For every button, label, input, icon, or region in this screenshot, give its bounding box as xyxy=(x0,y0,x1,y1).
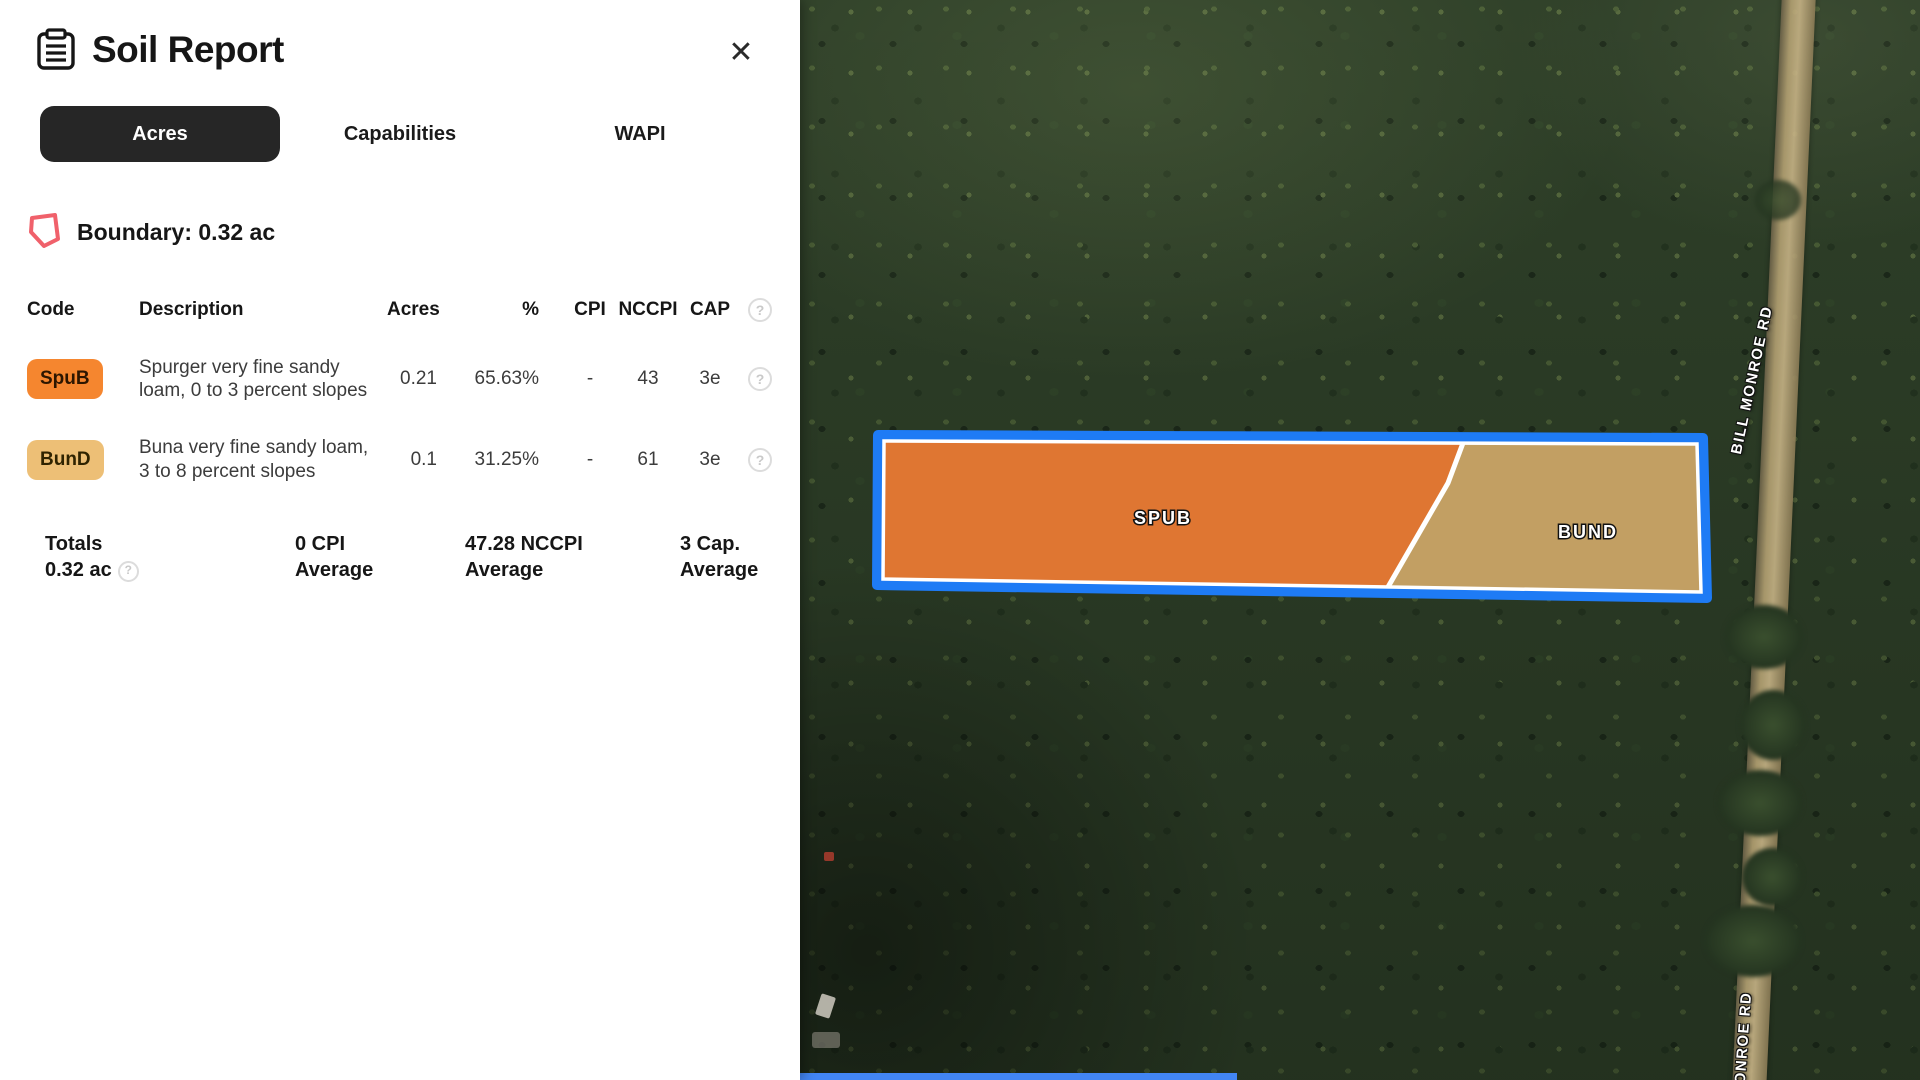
totals-cap-label: Average xyxy=(680,557,760,583)
soil-acres: 0.21 xyxy=(387,368,457,390)
soil-percent: 31.25% xyxy=(457,449,565,471)
spub-map-label: SPUB xyxy=(1134,508,1192,528)
satellite-map[interactable]: SPUB BUND BILL MONROE RD MONROE RD xyxy=(800,0,1920,1080)
bund-map-label: BUND xyxy=(1558,522,1618,542)
report-icon xyxy=(36,28,76,72)
totals-cpi-label: Average xyxy=(295,557,465,583)
soil-description: Spurger very fine sandy loam, 0 to 3 per… xyxy=(139,356,387,402)
tab-capabilities[interactable]: Capabilities xyxy=(280,106,520,162)
soil-percent: 65.63% xyxy=(457,368,565,390)
totals-nccpi-value: 47.28 NCCPI xyxy=(465,531,680,557)
soil-report-panel: Soil Report ✕ Acres Capabilities WAPI Bo… xyxy=(0,0,800,1080)
header-nccpi: NCCPI xyxy=(615,299,681,321)
boundary-label: Boundary: 0.32 ac xyxy=(77,219,275,246)
header-cpi: CPI xyxy=(565,299,615,321)
horizontal-scrollbar[interactable] xyxy=(800,1073,1237,1080)
totals-cpi: 0 CPI Average xyxy=(295,531,465,584)
table-row: SpuB Spurger very fine sandy loam, 0 to … xyxy=(0,356,800,402)
boundary-summary: Boundary: 0.32 ac xyxy=(27,212,800,252)
soil-cpi: - xyxy=(565,368,615,390)
soil-cpi: - xyxy=(565,449,615,471)
soil-acres: 0.1 xyxy=(387,449,457,471)
table-row: BunD Buna very fine sandy loam, 3 to 8 p… xyxy=(0,436,800,482)
help-icon[interactable]: ? xyxy=(748,448,772,472)
panel-header: Soil Report ✕ xyxy=(0,0,800,72)
totals-cap-value: 3 Cap. xyxy=(680,531,760,557)
soil-nccpi: 43 xyxy=(615,368,681,390)
screen: SPUB BUND BILL MONROE RD MONROE RD Soil … xyxy=(0,0,1920,1080)
page-title: Soil Report xyxy=(92,29,284,71)
help-icon[interactable]: ? xyxy=(748,298,772,322)
totals-cpi-value: 0 CPI xyxy=(295,531,465,557)
soil-cap: 3e xyxy=(681,449,739,471)
soil-code-badge-spub: SpuB xyxy=(27,359,103,399)
boundary-polygon-icon xyxy=(27,212,65,252)
tab-acres[interactable]: Acres xyxy=(40,106,280,162)
tab-bar: Acres Capabilities WAPI xyxy=(40,106,760,162)
totals-nccpi-label: Average xyxy=(465,557,680,583)
totals-row: Totals 0.32 ac? 0 CPI Average 47.28 NCCP… xyxy=(0,531,800,584)
soil-nccpi: 61 xyxy=(615,449,681,471)
soil-description: Buna very fine sandy loam, 3 to 8 percen… xyxy=(139,436,387,482)
header-acres: Acres xyxy=(387,299,457,321)
totals-acres: Totals 0.32 ac? xyxy=(45,531,295,584)
totals-title: Totals xyxy=(45,531,295,557)
parcel-overlay[interactable]: SPUB BUND xyxy=(800,0,1920,1080)
soil-texture xyxy=(883,441,1701,592)
header-percent: % xyxy=(457,299,565,321)
header-code: Code xyxy=(27,299,139,321)
help-icon[interactable]: ? xyxy=(118,561,139,582)
header-description: Description xyxy=(139,299,387,321)
totals-cap: 3 Cap. Average xyxy=(680,531,760,584)
totals-nccpi: 47.28 NCCPI Average xyxy=(465,531,680,584)
totals-acres-value: 0.32 ac xyxy=(45,559,112,581)
tab-wapi[interactable]: WAPI xyxy=(520,106,760,162)
close-button[interactable]: ✕ xyxy=(724,36,758,70)
table-header: Code Description Acres % CPI NCCPI CAP ? xyxy=(0,298,800,322)
help-icon[interactable]: ? xyxy=(748,367,772,391)
soil-cap: 3e xyxy=(681,368,739,390)
header-cap: CAP xyxy=(681,299,739,321)
soil-code-badge-bund: BunD xyxy=(27,440,104,480)
